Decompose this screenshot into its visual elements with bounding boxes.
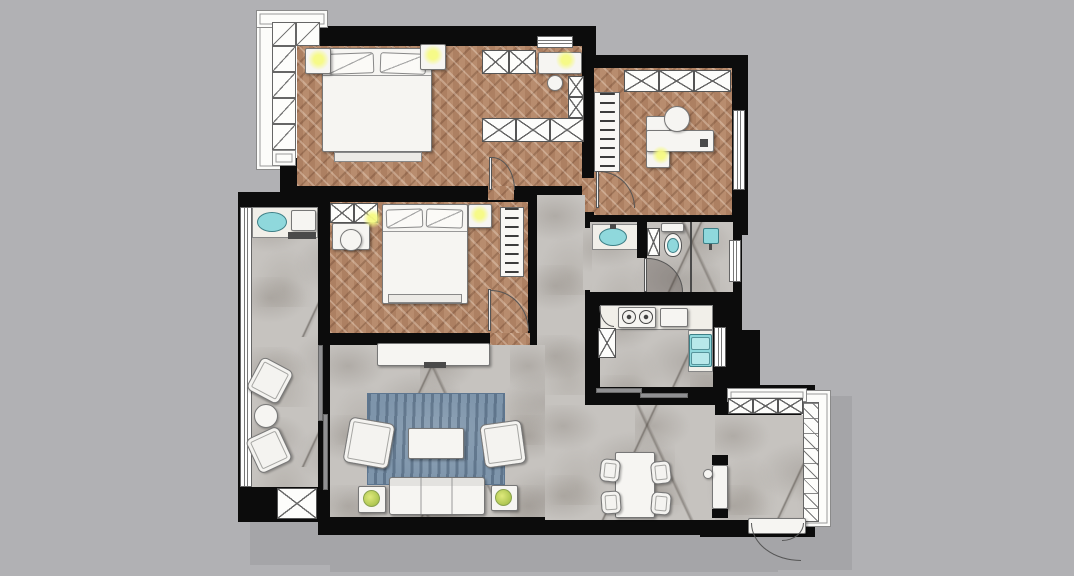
closet-cabinet	[550, 118, 584, 142]
balcony-mirror	[291, 210, 316, 231]
bay-pane	[272, 124, 296, 150]
coat-rack	[594, 92, 620, 172]
dining-chair	[650, 460, 672, 485]
study-window	[733, 110, 745, 190]
kitchen-window	[714, 327, 726, 367]
pillow	[426, 208, 464, 228]
closet-cabinet	[568, 97, 584, 118]
burner	[622, 310, 636, 324]
bay-sill	[272, 150, 296, 166]
plant	[495, 489, 512, 506]
entry-floor	[715, 415, 803, 520]
kitchen-cabinet	[598, 328, 616, 358]
utility-box	[277, 488, 317, 519]
bay-pane	[272, 72, 296, 98]
bath-sink	[599, 228, 627, 246]
wall-column-stub	[712, 509, 728, 518]
closet-cabinet	[482, 50, 509, 74]
desk-lamp-glow	[652, 146, 670, 164]
study-chair	[664, 106, 690, 132]
dressing-stool	[547, 75, 563, 91]
sofa	[389, 477, 485, 515]
dining-chair	[600, 490, 622, 514]
shoe-cabinet	[728, 398, 753, 414]
floor-plan	[0, 0, 1074, 576]
pillow	[386, 208, 424, 228]
study-cabinet	[624, 70, 659, 92]
bed-bench	[388, 294, 462, 303]
toilet-water	[667, 238, 679, 253]
door-stop	[703, 469, 713, 479]
armchair	[479, 419, 527, 468]
lamp-glow	[363, 209, 382, 228]
faucet	[610, 224, 616, 229]
bedroom2-door-opening	[490, 333, 530, 345]
toilet-tank	[661, 223, 684, 232]
closet-cabinet	[482, 118, 516, 142]
bathroom-entry-opening	[583, 228, 592, 290]
balcony-shelf	[288, 232, 316, 239]
sink-bowl	[691, 352, 710, 365]
lamp-glow	[423, 45, 443, 65]
sliding-door	[596, 388, 642, 393]
shoe-cabinet	[778, 398, 803, 414]
lamp-glow	[556, 50, 576, 70]
partition-column	[712, 465, 728, 509]
dining-chair	[599, 458, 621, 483]
closet-window	[537, 36, 573, 48]
study-cabinet	[659, 70, 694, 92]
balcony-slider	[318, 345, 323, 421]
burner	[639, 310, 653, 324]
bay-pane	[296, 22, 320, 46]
bedroom2-cabinet	[330, 203, 354, 223]
lamp-glow	[470, 205, 489, 224]
balcony-slider	[323, 414, 328, 490]
tv	[424, 362, 446, 368]
entry-bay-hatch	[803, 402, 819, 522]
dining-chair	[650, 491, 672, 516]
lamp-glow	[308, 49, 329, 70]
kitchen-counter	[600, 305, 713, 330]
closet-cabinet	[568, 76, 584, 97]
balcony-table	[254, 404, 278, 428]
plant	[363, 490, 380, 507]
sliding-door	[640, 393, 688, 398]
closet-cabinet	[516, 118, 550, 142]
desk-chair	[340, 229, 362, 251]
desk-item	[700, 139, 708, 147]
balcony-sink	[257, 212, 287, 232]
closet-cabinet	[509, 50, 536, 74]
study-cabinet	[694, 70, 731, 92]
coffee-table	[408, 428, 464, 459]
clothes-rack	[500, 207, 524, 277]
bay-pane	[272, 22, 296, 46]
shower-stem	[709, 244, 712, 250]
wall-bath-divider	[637, 222, 647, 258]
shower-head	[703, 228, 719, 244]
cutting-board	[660, 308, 688, 327]
bath-cabinet	[647, 228, 660, 256]
bathroom-window	[729, 240, 741, 282]
shower-partition	[690, 222, 692, 292]
shoe-cabinet	[753, 398, 778, 414]
armchair	[342, 416, 395, 469]
bed-bench	[334, 152, 422, 162]
sink-bowl	[691, 337, 710, 350]
bay-pane	[272, 46, 296, 72]
wall-column-stub	[712, 455, 728, 465]
pillow	[328, 52, 375, 75]
bay-pane	[272, 98, 296, 124]
